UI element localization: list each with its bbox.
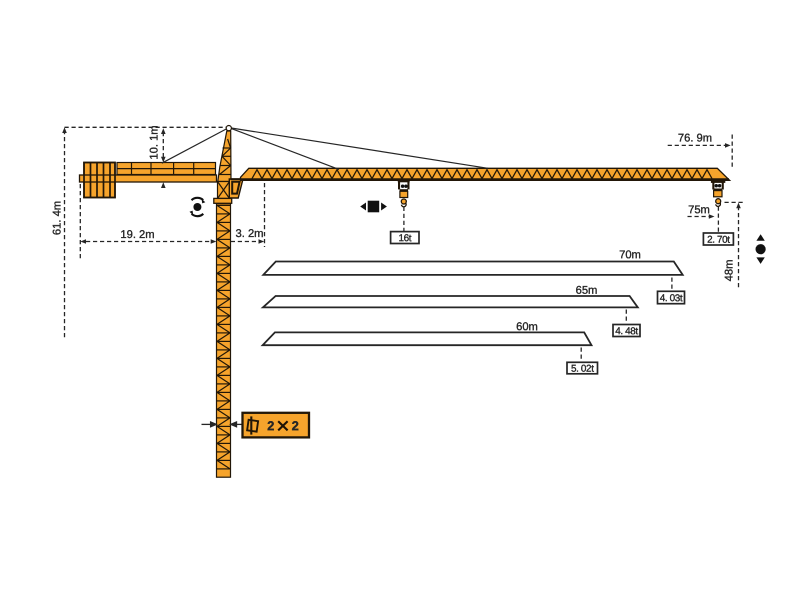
svg-text:4. 03t: 4. 03t xyxy=(660,293,683,304)
svg-text:10. 1m: 10. 1m xyxy=(149,125,161,159)
svg-text:65m: 65m xyxy=(576,285,598,297)
svg-text:60m: 60m xyxy=(516,321,538,333)
svg-text:48m: 48m xyxy=(724,260,736,282)
svg-text:16t: 16t xyxy=(398,233,411,244)
svg-text:2. 70t: 2. 70t xyxy=(707,235,730,246)
svg-text:3. 2m: 3. 2m xyxy=(236,228,264,240)
svg-text:2: 2 xyxy=(292,418,299,433)
svg-text:2: 2 xyxy=(267,418,274,433)
svg-text:76. 9m: 76. 9m xyxy=(678,132,712,144)
svg-text:4. 48t: 4. 48t xyxy=(615,326,638,337)
svg-text:19. 2m: 19. 2m xyxy=(120,229,154,241)
svg-text:5. 02t: 5. 02t xyxy=(571,364,594,375)
svg-text:70m: 70m xyxy=(619,249,641,261)
svg-text:61. 4m: 61. 4m xyxy=(52,201,64,235)
svg-text:75m: 75m xyxy=(688,204,710,216)
